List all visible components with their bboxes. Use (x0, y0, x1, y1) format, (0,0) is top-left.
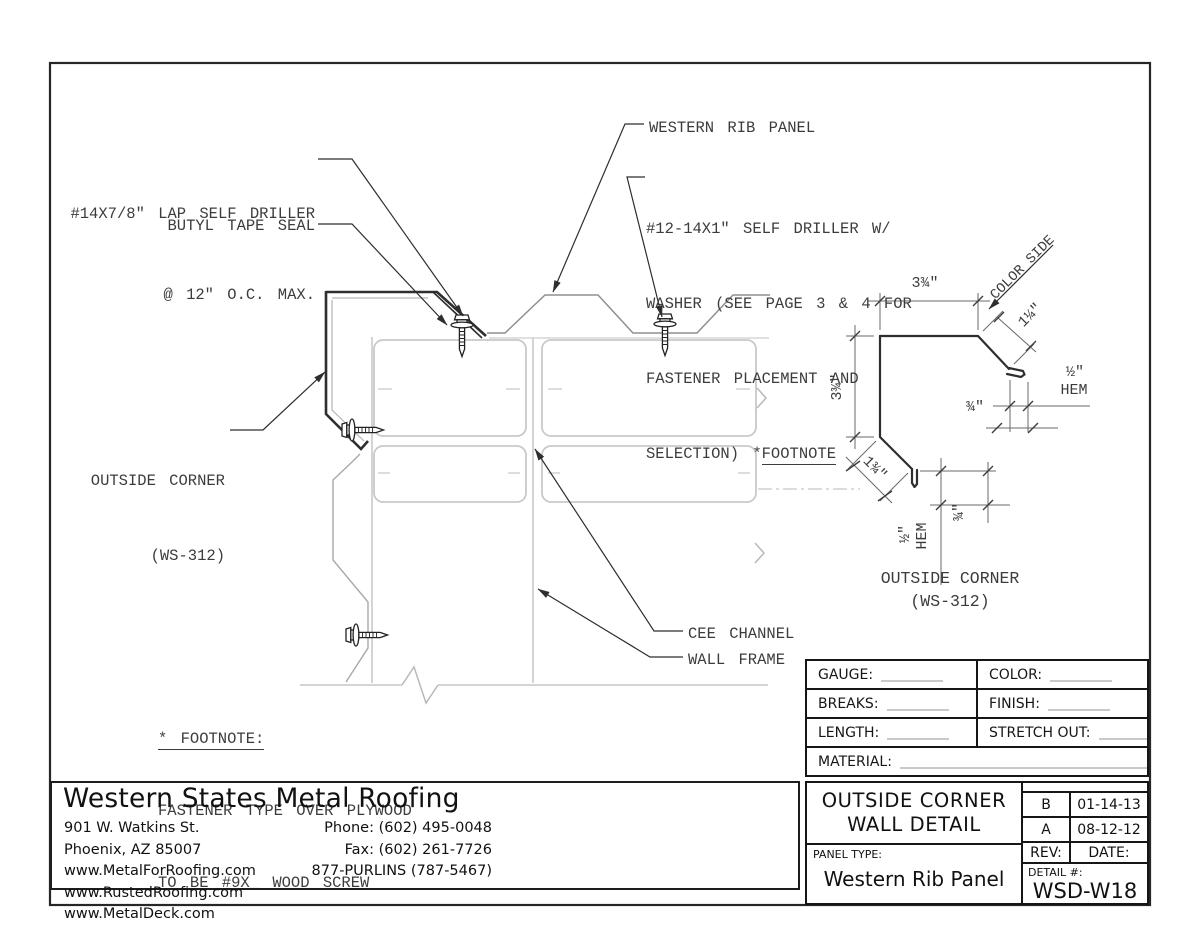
spec-stretch-out-cell: STRETCH OUT: (976, 717, 1147, 746)
callout-outside-corner: OUTSIDE CORNER (WS-312) (85, 419, 225, 619)
dim-right-leg-label: ¾" (966, 399, 984, 416)
callout-wall-frame: WALL FRAME (688, 647, 785, 673)
dim-right-hem-size: ½" (1066, 364, 1084, 381)
spec-gauge-blank (881, 668, 943, 682)
dim-top-label: 3¾" (911, 275, 938, 292)
spec-finish-cell: FINISH: (976, 688, 1147, 717)
spec-length-cell: LENGTH: (807, 717, 976, 746)
revision-a-letter: A (1023, 818, 1071, 841)
detail-caption-line2: (WS-312) (910, 592, 989, 611)
callout-lap-line2: @ 12" O.C. MAX. (70, 282, 315, 309)
callout-cee-channel: CEE CHANNEL (688, 621, 794, 647)
callout-self-driller-line1: #12-14X1" SELF DRILLER W/ (646, 217, 912, 242)
color-side-label: COLOR SIDE (988, 233, 1059, 304)
revision-row-b: B 01-14-13 (1023, 793, 1149, 818)
spec-finish-blank (1048, 697, 1110, 711)
callout-butyl-tape-seal: BUTYL TAPE SEAL (70, 213, 315, 239)
drawing-sheet: 3¾" 1¼" 3¾" 1¾" ½" HEM ¾" ¾" ½" HEM COLO… (0, 0, 1200, 927)
company-website-2: www.RustedRoofing.com (64, 883, 256, 905)
detail-number-label: DETAIL #: (1028, 866, 1083, 879)
detail-caption-line1: OUTSIDE CORNER (881, 569, 1020, 588)
revision-empty-row (1023, 781, 1149, 793)
company-info-block: Western States Metal Roofing 901 W. Watk… (50, 781, 800, 890)
sheet-title: OUTSIDE CORNER WALL DETAIL (805, 781, 1023, 845)
spec-color-label: COLOR: (989, 667, 1042, 683)
title-block: OUTSIDE CORNER WALL DETAIL PANEL TYPE: W… (805, 781, 1149, 905)
sheet-title-line1: OUTSIDE CORNER (822, 789, 1007, 813)
panel-type-value: Western Rib Panel (807, 867, 1021, 891)
spec-length-blank (887, 726, 949, 740)
footnote-title: * FOOTNOTE: (158, 730, 264, 750)
spec-breaks-blank (887, 697, 949, 711)
company-phone: Phone: (602) 495-0048 (292, 818, 492, 840)
callout-outside-corner-line2: (WS-312) (85, 544, 225, 569)
callout-lap-self-driller: #14X7/8" LAP SELF DRILLER @ 12" O.C. MAX… (70, 147, 315, 363)
date-header: DATE: (1071, 843, 1147, 862)
company-address-line1: 901 W. Watkins St. (64, 818, 256, 840)
sheet-title-line2: WALL DETAIL (847, 813, 981, 837)
spec-breaks-label: BREAKS: (818, 696, 879, 712)
dim-bottom-hem-size: ½" (897, 525, 914, 543)
dim-bottom-leg-label: ¾" (951, 503, 968, 521)
company-fax: Fax: (602) 261-7726 (292, 840, 492, 862)
spec-finish-label: FINISH: (989, 696, 1040, 712)
company-address-line2: Phoenix, AZ 85007 (64, 840, 256, 862)
panel-type-cell: PANEL TYPE: Western Rib Panel (805, 845, 1023, 905)
spec-stretch-out-blank (1099, 726, 1147, 740)
spec-color-cell: COLOR: (976, 661, 1147, 688)
callout-outside-corner-line1: OUTSIDE CORNER (85, 469, 225, 494)
spec-material-cell: MATERIAL: (807, 746, 1147, 775)
detail-number-cell: DETAIL #: WSD-W18 (1023, 864, 1149, 905)
spec-gauge-label: GAUGE: (818, 667, 873, 683)
revision-b-date: 01-14-13 (1071, 793, 1147, 816)
panel-type-label: PANEL TYPE: (813, 848, 882, 861)
callout-western-rib-panel: WESTERN RIB PANEL (649, 115, 815, 141)
left-wall-panel-profile (332, 298, 428, 682)
spec-color-blank (1050, 668, 1112, 682)
spec-material-label: MATERIAL: (818, 754, 892, 770)
fastener-screws (342, 314, 676, 646)
callout-self-driller: #12-14X1" SELF DRILLER W/ WASHER (SEE PA… (646, 167, 912, 517)
dim-right-hem-word: HEM (1060, 382, 1087, 399)
company-website-1: www.MetalForRoofing.com (64, 861, 256, 883)
callout-self-driller-line4: SELECTION) *FOOTNOTE (646, 442, 912, 467)
spec-stretch-out-label: STRETCH OUT: (989, 725, 1091, 741)
callout-self-driller-line2: WASHER (SEE PAGE 3 & 4 FOR (646, 292, 912, 317)
footnote-reference: FOOTNOTE (762, 445, 836, 465)
company-tollfree: 877-PURLINS (787-5467) (292, 861, 492, 883)
revision-header-row: REV: DATE: (1023, 843, 1149, 864)
revision-b-letter: B (1023, 793, 1071, 816)
company-name: Western States Metal Roofing (63, 783, 460, 814)
spec-breaks-cell: BREAKS: (807, 688, 976, 717)
callout-self-driller-line3: FASTENER PLACEMENT AND (646, 367, 912, 392)
spec-form-table: GAUGE: COLOR: BREAKS: FINISH: LENGTH: ST… (805, 659, 1149, 777)
revision-a-date: 08-12-12 (1071, 818, 1147, 841)
dim-top-diagonal-label: 1¼" (1015, 300, 1046, 331)
spec-material-blank (900, 755, 1147, 769)
dim-bottom-hem-word: HEM (914, 522, 931, 549)
rev-header: REV: (1023, 843, 1071, 862)
detail-number-value: WSD-W18 (1023, 879, 1147, 903)
company-website-3: www.MetalDeck.com (64, 904, 256, 926)
spec-length-label: LENGTH: (818, 725, 879, 741)
spec-gauge-cell: GAUGE: (807, 661, 976, 688)
revision-row-a: A 08-12-12 (1023, 818, 1149, 843)
